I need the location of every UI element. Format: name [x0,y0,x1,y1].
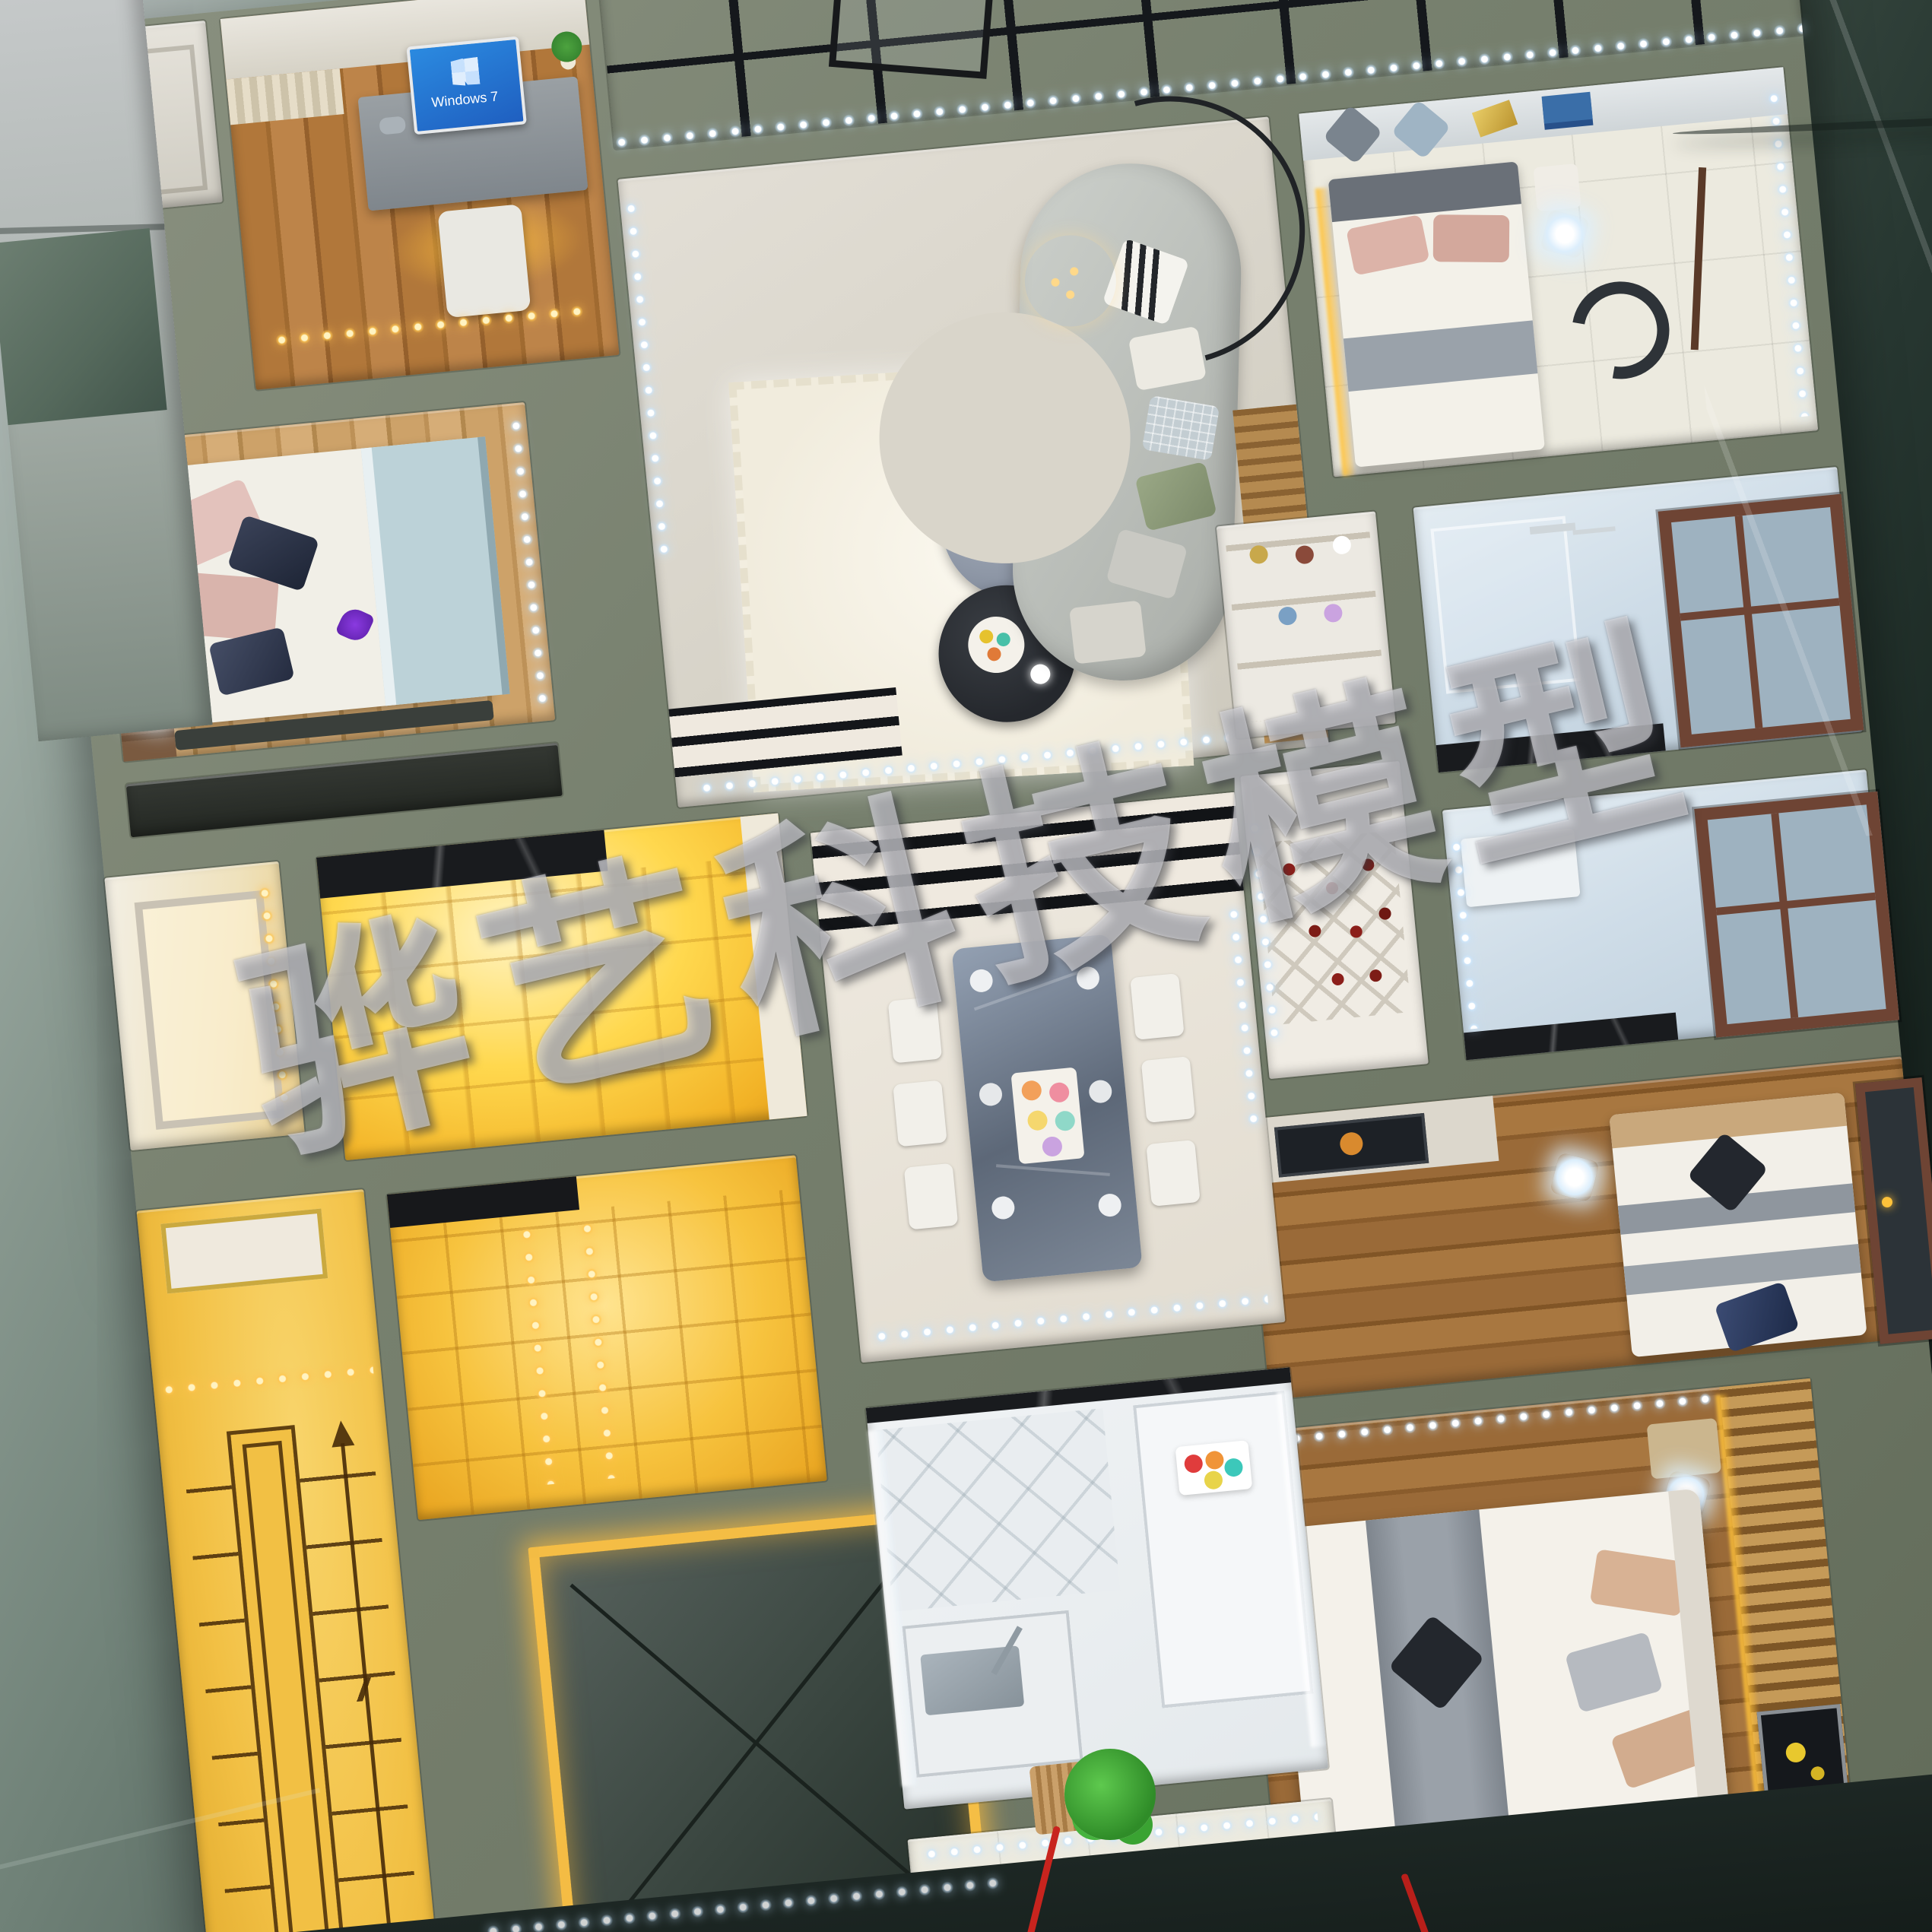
model-base-plate: Windows 7 [23,0,1932,1932]
study-floor-led [274,304,593,347]
blue-blanket [361,436,510,706]
stair-arrow-break [345,1676,387,1702]
cabinet-shelf-top [1252,774,1393,830]
master-tan-pillow1 [1590,1549,1688,1616]
table-marble-bottom-left [0,1725,564,1932]
pillow-pink2 [1433,214,1510,262]
small-bedroom-led [509,417,549,706]
purple-flower [335,604,375,645]
dining-bottom-led [874,1293,1268,1344]
balcony-table [829,0,994,79]
yellow-room-lower [387,1155,827,1520]
dining-chair-4 [1130,973,1185,1040]
wine-lattice [1258,830,1411,1025]
sofa-pillow-grid [1142,395,1220,461]
navy-satin-pillow [1714,1281,1800,1353]
display-nook [1217,511,1396,738]
pillow-pink1 [1346,214,1429,276]
kitchen-tile-wall [876,1408,1121,1612]
plan-door-slab [160,1209,328,1294]
bath1-marble-strip [1436,723,1666,772]
left-hall-panel [104,861,304,1150]
yellow-tiles [320,854,807,1160]
bottom-left-vein [0,1788,320,1882]
wine-cabinet [1240,761,1428,1079]
kitchen-fruits [1184,1454,1204,1474]
monitor-brand-label: Windows 7 [414,87,516,113]
fruit-platter [1175,1440,1253,1496]
blanket-band [1344,320,1538,392]
dining-chair-5 [1141,1056,1196,1123]
macaron-tray [1010,1068,1084,1165]
green-marble-patch [0,228,167,425]
crystal-lamp [1540,209,1590,259]
bed [1328,161,1545,467]
tv-console-wall [1243,1096,1499,1185]
study-room: Windows 7 [220,0,620,390]
yellow-room-upper [316,814,807,1161]
windows-flag-icon [450,57,480,87]
bath2-marble-strip [1464,1013,1678,1061]
dining-chair-2 [893,1080,947,1147]
stairs-led-row [161,1364,374,1397]
marble-vein-1 [974,967,1090,1010]
living-left-led [624,201,671,565]
study-chair [437,204,531,318]
living-room [617,116,1329,807]
bedroom-tv-wall [126,743,563,837]
kitchen [866,1367,1328,1809]
master-top-led [1243,1392,1714,1449]
dining-room [811,792,1286,1363]
vanity [1461,828,1581,907]
bedroom-chandelier [1550,1152,1600,1202]
tv-artwork-dot [1339,1131,1364,1156]
dining-floor-stripes [811,792,1244,931]
dining-chair-3 [904,1163,959,1230]
macarons [1021,1080,1042,1101]
side-table [1533,163,1581,211]
shower-glass [1430,516,1581,694]
master-gray-pillow [1565,1632,1663,1713]
headboard [1328,161,1521,222]
marble-vein-2 [996,1164,1110,1176]
stair-arrowhead-up [329,1420,354,1448]
dining-table [951,934,1142,1282]
yellow-leaves [1785,1742,1807,1763]
model-photo-canvas: Windows 7 [0,0,1932,1932]
lounge-chair [1553,262,1689,398]
study-back-wall [220,0,589,80]
wall-tv [1274,1113,1429,1178]
shaft-x-line2 [603,1551,909,1932]
plate-1 [969,969,994,994]
study-monitor: Windows 7 [406,36,526,135]
dining-chair-1 [888,997,943,1064]
study-wall-paneling [226,68,344,125]
nightstand-top [1647,1418,1721,1479]
dining-chair-6 [1146,1140,1201,1207]
sofa-pillow-gray2 [1069,600,1147,664]
edge-plant [1064,1749,1156,1840]
blue-books [1542,92,1593,124]
kitchen-sink [920,1645,1024,1715]
